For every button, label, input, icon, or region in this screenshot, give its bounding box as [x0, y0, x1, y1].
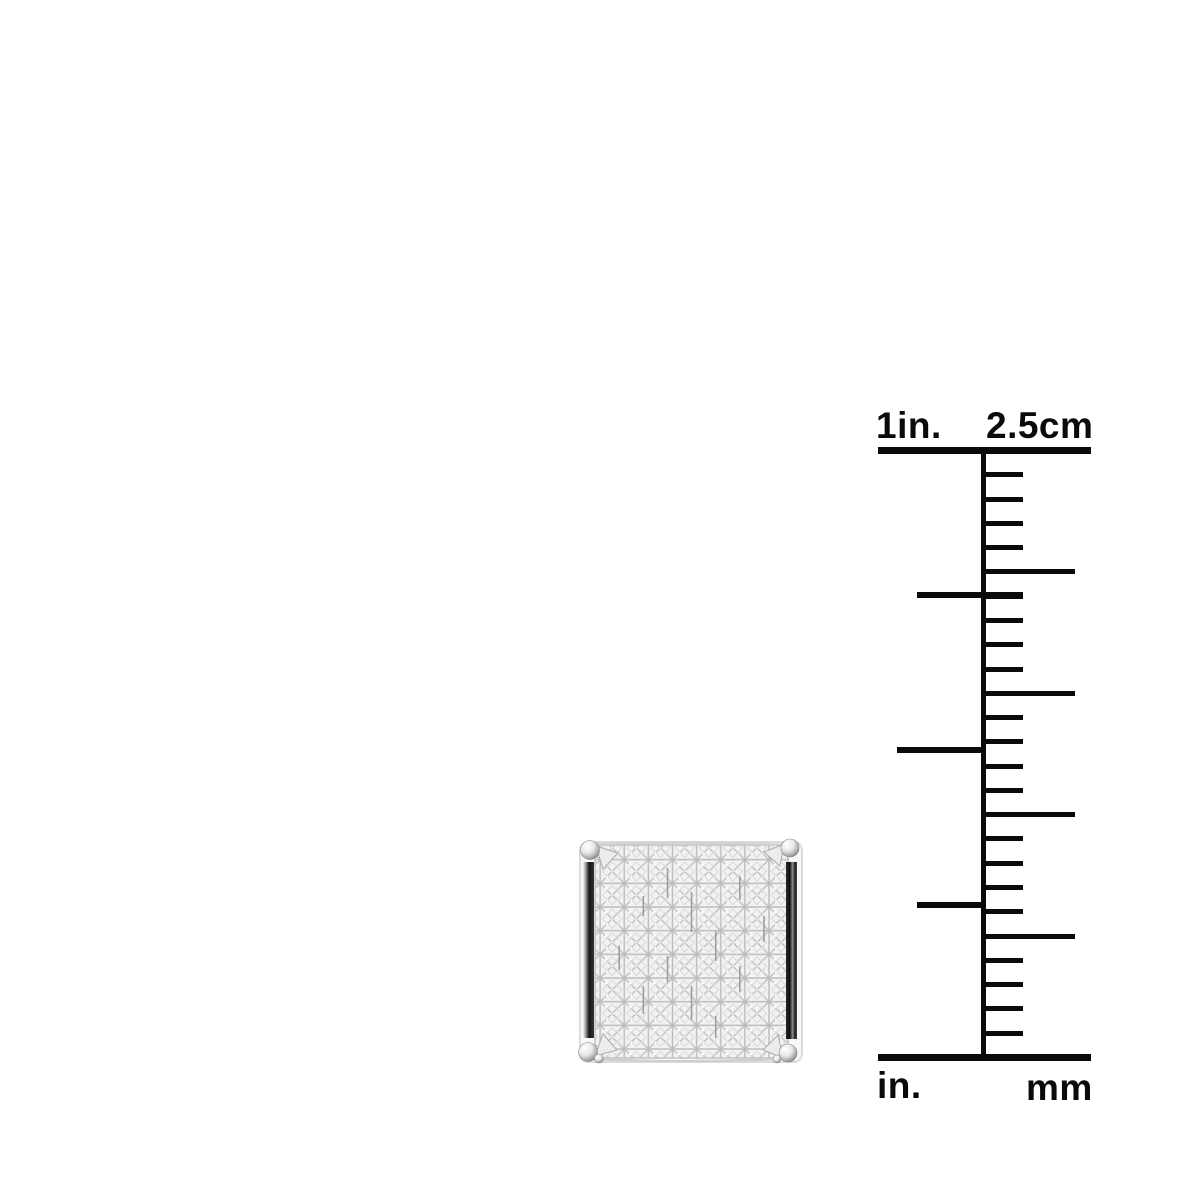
ruler-label-mm: mm — [1026, 1069, 1093, 1106]
ruler-5mm-tick — [981, 569, 1075, 574]
earring-illustration — [576, 836, 806, 1068]
diamond-grid — [595, 845, 788, 1058]
ruler-mm-tick — [981, 642, 1023, 647]
ruler-mm-tick — [981, 909, 1023, 914]
ruler-mm-tick — [981, 1031, 1023, 1036]
diamond-stud-earring-photo — [576, 836, 806, 1068]
ruler-mm-tick — [981, 861, 1023, 866]
ruler-mm-tick — [981, 594, 1023, 599]
ruler-bottom-edge — [878, 1054, 1091, 1061]
prong-ball-top-left — [581, 841, 600, 860]
ruler-mm-tick — [981, 497, 1023, 502]
prong-knob-bottom-right — [773, 1055, 781, 1063]
ruler-mm-tick — [981, 521, 1023, 526]
ruler-label-in: in. — [877, 1067, 922, 1104]
ruler-mm-tick — [981, 715, 1023, 720]
ruler-top-edge — [878, 447, 1091, 454]
ruler-inch-tick — [917, 592, 1023, 598]
ruler-inch-tick — [917, 902, 983, 908]
ruler-mm-tick — [981, 545, 1023, 550]
ruler-mm-tick — [981, 982, 1023, 987]
ruler-mm-tick — [981, 667, 1023, 672]
prong-ball-bottom-right — [779, 1044, 797, 1062]
ruler-5mm-tick — [981, 934, 1075, 939]
ruler-inch-tick — [897, 747, 983, 753]
ruler-mm-tick — [981, 958, 1023, 963]
ruler-mm-tick — [981, 764, 1023, 769]
product-photo-canvas: 1in. 2.5cm in. mm — [0, 0, 1200, 1200]
ruler-mm-tick — [981, 472, 1023, 477]
ruler-5mm-tick — [981, 691, 1075, 696]
ruler-label-1in: 1in. — [876, 407, 942, 444]
ruler-mm-tick — [981, 885, 1023, 890]
earring-right-wall — [786, 862, 797, 1039]
prong-knob-bottom-left — [595, 1054, 604, 1063]
ruler-mm-tick — [981, 788, 1023, 793]
ruler-5mm-tick — [981, 812, 1075, 817]
ruler-label-2-5cm: 2.5cm — [986, 407, 1093, 444]
earring-left-wall — [583, 862, 594, 1038]
prong-ball-top-right — [781, 839, 799, 857]
ruler-axis — [981, 447, 986, 1061]
ruler-mm-tick — [981, 1006, 1023, 1011]
ruler-mm-tick — [981, 739, 1023, 744]
ruler-mm-tick — [981, 836, 1023, 841]
ruler-mm-tick — [981, 618, 1023, 623]
